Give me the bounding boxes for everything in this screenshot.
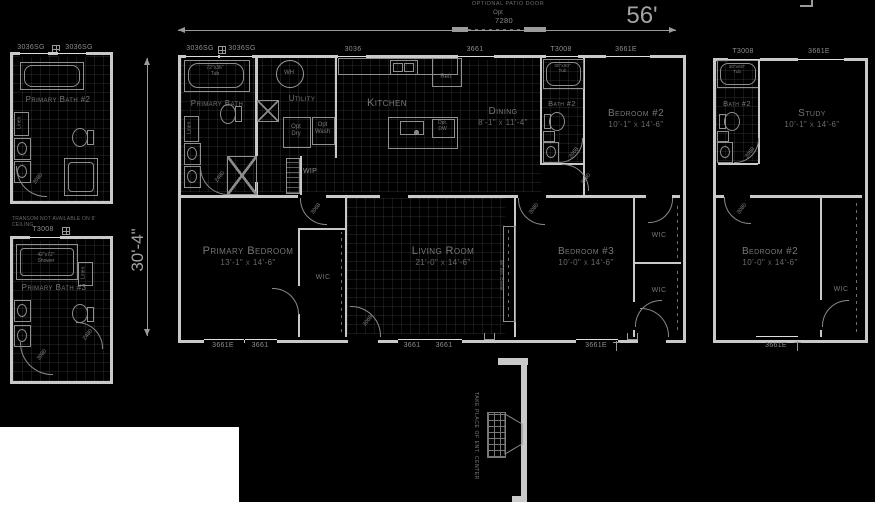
window-label: 3036SG: [14, 44, 48, 51]
wall: [750, 195, 862, 198]
toilet-tank: [87, 307, 94, 322]
floor-plan-canvas: 56' 30'-4" OPTIONAL PATIO DOOR Opt 7280 …: [0, 0, 880, 508]
window-glyph: [458, 54, 494, 60]
wall: [546, 195, 646, 198]
window-label: 3661E: [754, 342, 798, 349]
room-label-primary-bedroom: Primary Bedroom: [196, 245, 300, 258]
room-label-option-wic: WIC: [826, 286, 856, 294]
closet-shelf: [677, 202, 678, 258]
linen-label: Linen: [81, 261, 87, 285]
cabinet: [543, 131, 555, 142]
depth-dimension: 30'-4": [128, 215, 148, 285]
water-heater-label: WH: [276, 70, 302, 77]
patio-door-jamb: [524, 27, 546, 32]
sink-bowl: [17, 142, 27, 155]
window-label: 3036SG: [62, 44, 96, 51]
room-label-study: Study: [776, 108, 848, 120]
roofline-break: [811, 0, 813, 7]
wall: [758, 60, 760, 164]
sink-bowl: [17, 329, 27, 342]
wall: [820, 330, 822, 337]
egress-window-icon: [62, 227, 70, 235]
patio-model-label: 7280: [490, 16, 518, 25]
window-glyph: [30, 235, 60, 241]
sink-bowl: [720, 146, 730, 158]
egress-marker-icon: [612, 341, 621, 351]
tub-label: 30"x60" Tub: [545, 64, 580, 75]
closet-shelf: [677, 268, 678, 330]
room-label-utility: Utility: [280, 94, 324, 103]
patio-door-dashed-line: [468, 29, 524, 30]
egress-window-icon: [218, 46, 226, 54]
wall: [300, 156, 302, 195]
room-dims-study: 10'-1" x 14'-6": [774, 120, 850, 129]
wall: [820, 198, 822, 300]
dim-arrow-up-icon: [144, 58, 150, 65]
tub-label: 72"x36" Tub: [188, 66, 242, 77]
room-label-bedroom2: Bedroom #2: [600, 108, 672, 120]
refrigerator-label: Refr: [432, 74, 460, 81]
linen-label: Linen: [187, 116, 193, 140]
dim-arrow-down-icon: [144, 329, 150, 336]
wall: [540, 58, 542, 165]
toilet: [549, 112, 565, 131]
room-label-living: Living Room: [398, 245, 488, 258]
room-label-wic: WIC: [303, 274, 343, 282]
refrigerator: [432, 58, 462, 87]
plan-sheet-lower: [239, 427, 875, 502]
window-label: 3036SG: [226, 45, 258, 52]
cabinet: [717, 131, 729, 142]
toilet-tank: [544, 114, 551, 129]
room-label-primary-bath: Primary Bath: [186, 99, 248, 108]
window-label: 3036: [340, 46, 366, 53]
wall: [300, 228, 345, 230]
patio-door-note: OPTIONAL PATIO DOOR: [462, 1, 554, 7]
wall: [633, 330, 635, 337]
wall: [298, 314, 300, 337]
room-label-kitchen: Kitchen: [357, 97, 417, 110]
window-label: 3661E: [202, 342, 244, 349]
fireplace-note: TAKE PLACE OF ENT. CENTER: [468, 384, 478, 488]
room-dims-bedroom3: 10'-0" x 14'-6": [548, 258, 624, 267]
fireplace-wall-cap: [512, 496, 527, 502]
window-glyph: [756, 334, 798, 340]
room-label-wip: WIP: [296, 168, 324, 175]
room-label-wic-bottom: WIC: [644, 287, 674, 295]
wall: [345, 198, 347, 337]
room-label-option-bedroom2: Bedroom #2: [730, 246, 810, 258]
depth-dim-line: [147, 58, 148, 336]
closet-rod: [341, 232, 342, 332]
toilet: [72, 128, 88, 147]
range-burners: [393, 63, 403, 72]
window-label: 3661E: [796, 48, 842, 55]
wall: [635, 262, 681, 264]
wall: [633, 198, 635, 302]
room-dims-option-bedroom2: 10'-0" x 14'-6": [732, 258, 808, 267]
closet-shelf: [856, 202, 857, 332]
room-label-dining: Dining: [470, 106, 536, 118]
egress-marker-icon: [793, 341, 802, 351]
window-glyph: [606, 54, 650, 60]
door-opening: [638, 337, 666, 343]
option-label-primary-bath2: Primary Bath #2: [18, 95, 98, 104]
window-label: T3008: [544, 46, 578, 53]
sink-bowl: [17, 304, 27, 317]
entertainment-center: [503, 226, 516, 322]
width-dimension: 56': [612, 2, 672, 30]
patio-door-jamb: [452, 27, 468, 32]
optional-dishwasher-label: Opt. DW: [432, 121, 453, 132]
fireplace-wall-cap: [498, 358, 528, 365]
room-label-bedroom3: Bedroom #3: [544, 246, 628, 258]
linen-label: Linen: [17, 111, 23, 135]
room-dims-primary-bedroom: 13'-1" x 14'-6": [204, 258, 292, 267]
porch-post-icon: [484, 333, 495, 340]
toilet: [724, 112, 740, 131]
range-burners: [404, 63, 414, 72]
island-sink: [400, 121, 424, 135]
wall: [718, 163, 758, 165]
wall: [326, 195, 380, 198]
tub-label: 30"x60" Tub: [719, 65, 755, 76]
window-label: 3661E: [604, 46, 648, 53]
optional-washer-label: Opt Wash: [312, 122, 333, 135]
sink-bowl: [546, 146, 556, 158]
wall: [408, 195, 518, 198]
floor-drain: [257, 100, 279, 122]
room-label-wic-top: WIC: [644, 232, 674, 240]
window-label: T3008: [28, 226, 58, 233]
shower: [227, 156, 257, 195]
optional-dryer-label: Opt Dry: [283, 124, 309, 137]
wall: [716, 195, 724, 198]
room-dims-dining: 8'-1" x 11'-4": [462, 118, 544, 127]
sink-bowl: [187, 147, 197, 160]
window-label: 3661: [458, 46, 492, 53]
window-label: 3036SG: [184, 45, 216, 52]
pantry-shelves: [286, 158, 300, 194]
window-glyph: [798, 57, 844, 63]
toilet-tank: [87, 130, 94, 145]
ent-center-shelf: [508, 229, 509, 317]
window-label: T3008: [726, 48, 760, 55]
toilet-tank: [719, 114, 726, 129]
tub-basin: [24, 65, 80, 87]
wall: [335, 58, 337, 158]
ent-center-label: 96" Ent. Center: [494, 240, 503, 310]
room-label-bath2: Bath #2: [540, 100, 584, 109]
width-dim-line: [178, 30, 676, 31]
window-glyph: [20, 51, 48, 57]
firebox: [504, 413, 524, 455]
room-label-option-bath2: Bath #2: [714, 100, 760, 109]
toilet: [72, 304, 88, 323]
window-label: 3661: [244, 342, 276, 349]
room-dims-bedroom2: 10'-1" x 14'-6": [598, 120, 674, 129]
room-dims-living: 21'-0" x 14'-6": [400, 258, 486, 267]
sink-drain: [414, 130, 419, 135]
wall: [672, 195, 680, 198]
shower-pan: [68, 162, 94, 192]
dim-arrow-left-icon: [178, 27, 185, 33]
sink-bowl: [187, 170, 197, 183]
door-opening: [348, 337, 378, 343]
window-glyph: [58, 51, 86, 57]
wall: [181, 195, 298, 198]
shower-label: 42"x72" Shower: [20, 253, 72, 264]
window-label: 3661: [396, 342, 428, 349]
window-label: 3661: [428, 342, 460, 349]
